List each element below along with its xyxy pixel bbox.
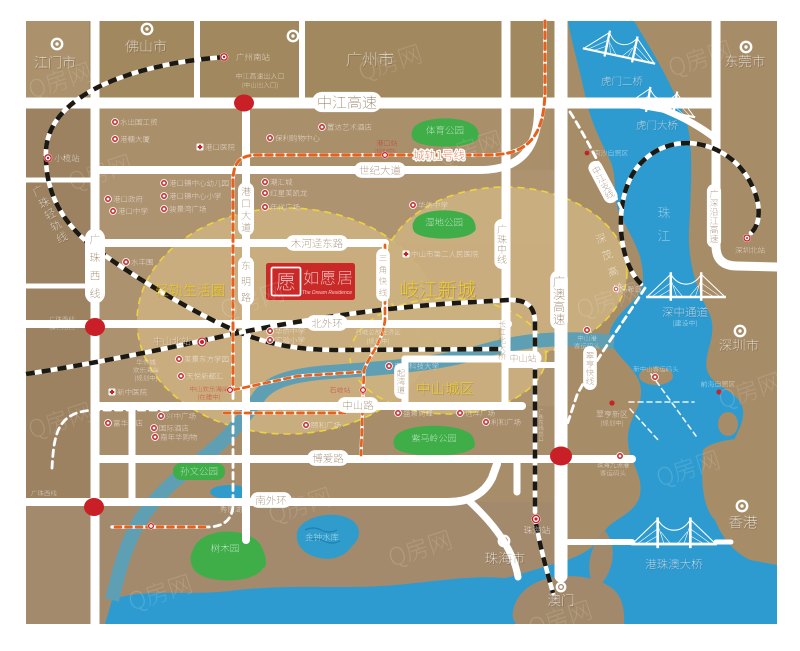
svg-text:The Dream Residence: The Dream Residence bbox=[302, 290, 352, 296]
